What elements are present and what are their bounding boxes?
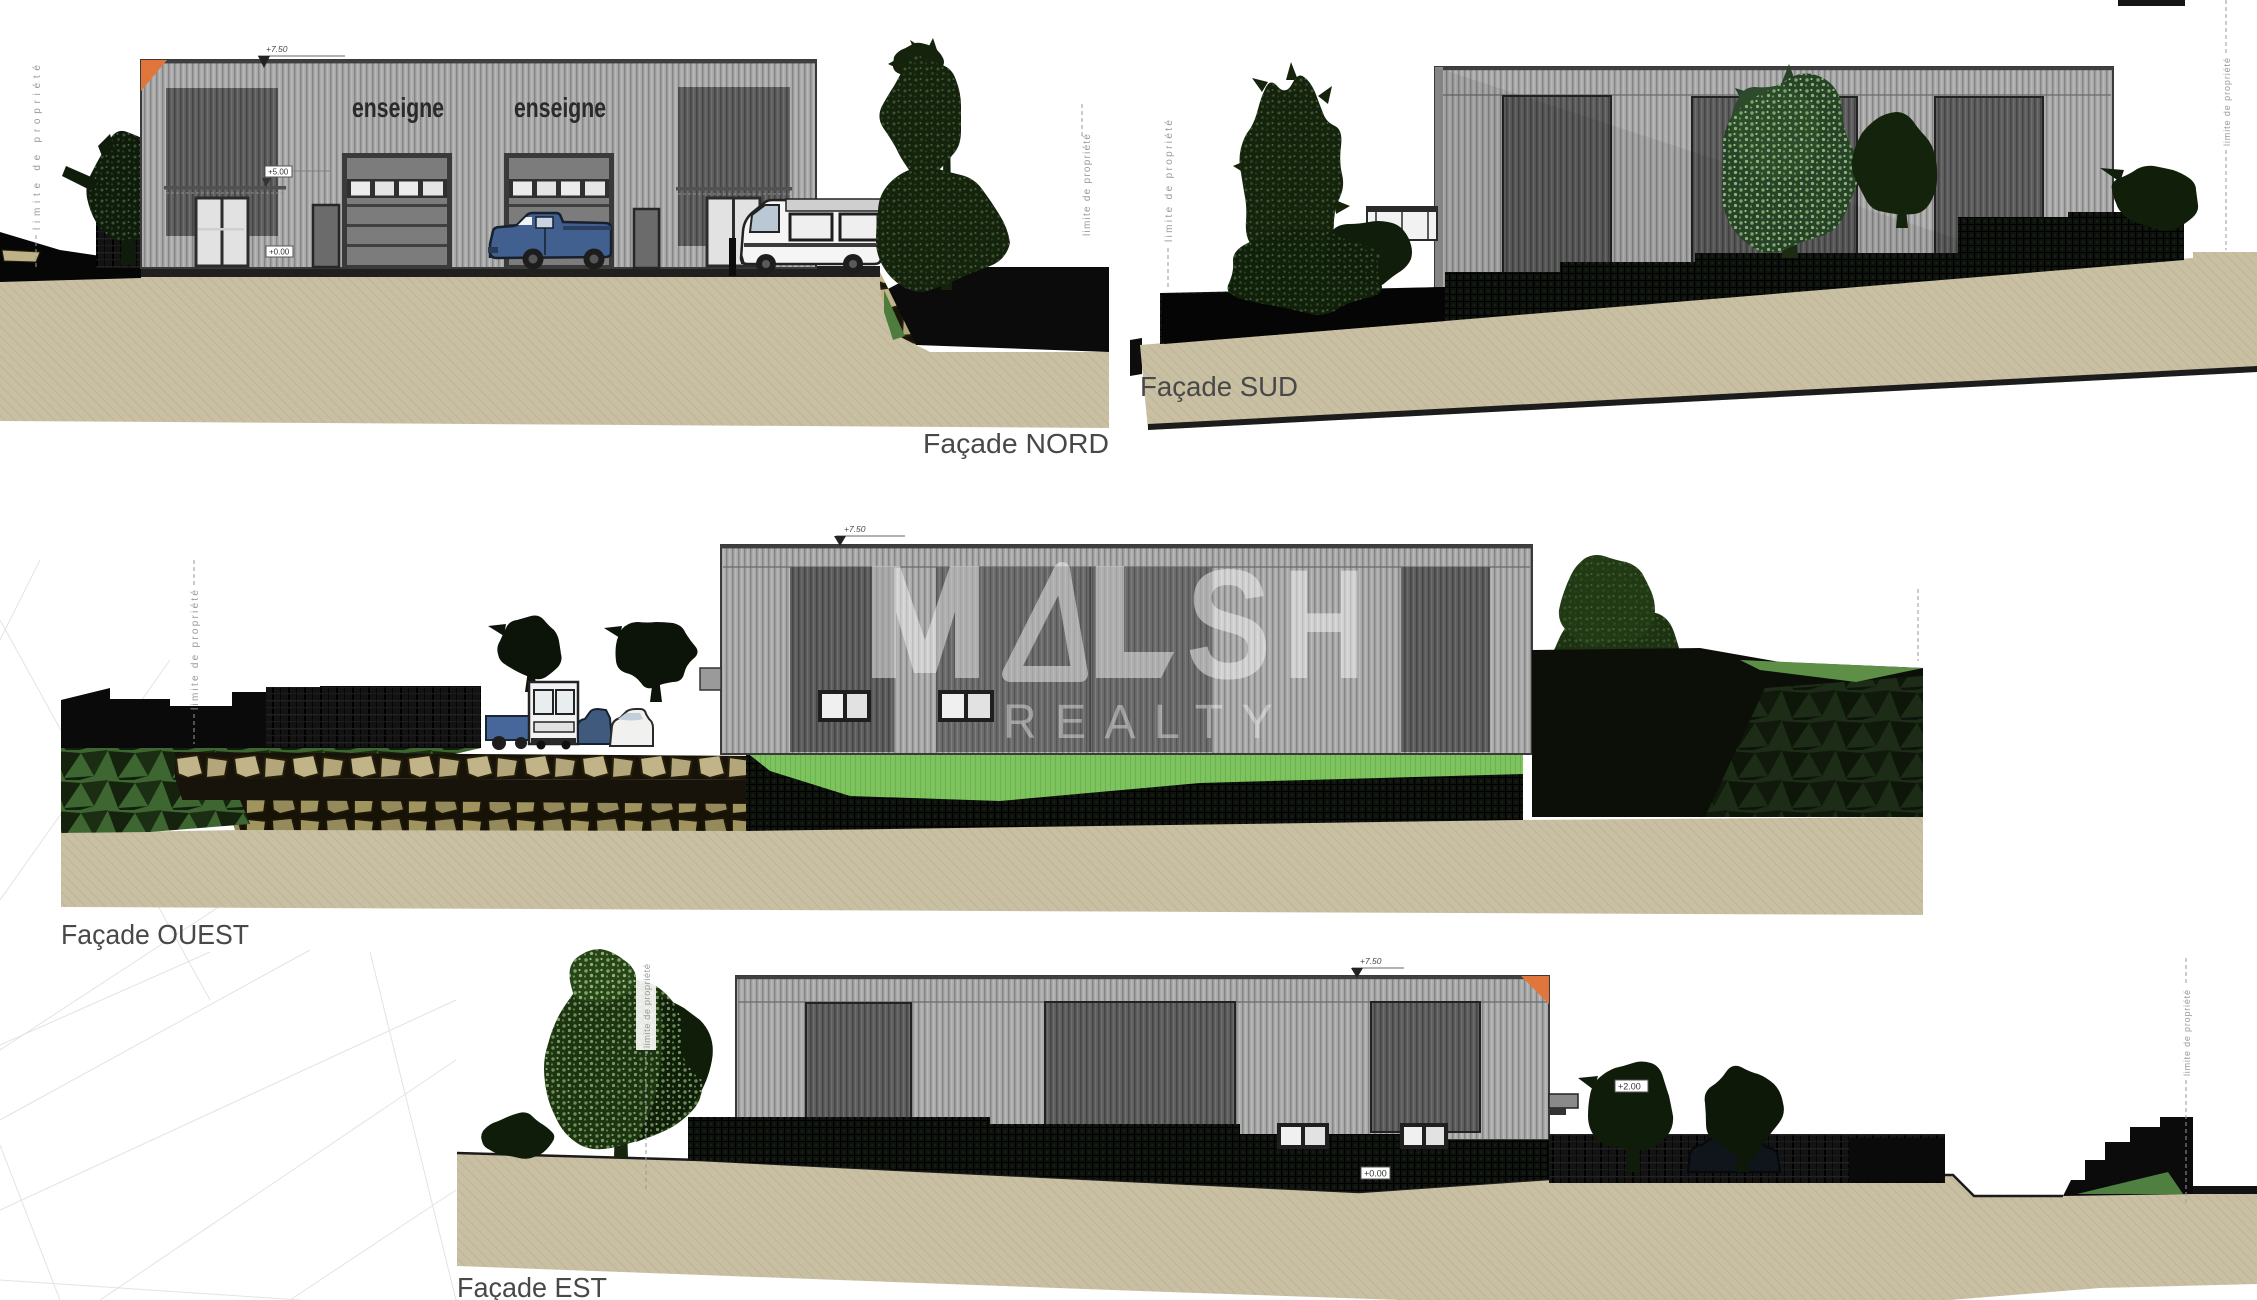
svg-text:enseigne: enseigne — [352, 92, 444, 123]
svg-text:S: S — [1186, 538, 1271, 712]
svg-text:+7.50: +7.50 — [844, 524, 866, 534]
svg-text:Façade NORD: Façade NORD — [923, 428, 1109, 459]
svg-text:+0.00: +0.00 — [1364, 1169, 1387, 1179]
svg-text:Façade EST: Façade EST — [457, 1272, 607, 1300]
svg-text:limite de propriété: limite de propriété — [642, 964, 653, 1048]
svg-text:limite de propriété: limite de propriété — [2222, 58, 2232, 146]
svg-text:+0.00: +0.00 — [269, 248, 290, 257]
svg-text:+2.00: +2.00 — [1618, 1082, 1641, 1092]
svg-text:limite de propriété: limite de propriété — [2182, 990, 2192, 1076]
svg-text:Façade OUEST: Façade OUEST — [61, 919, 249, 950]
svg-text:+7.50: +7.50 — [1360, 956, 1382, 966]
svg-text:+7.50: +7.50 — [266, 44, 288, 54]
svg-text:+5.00: +5.00 — [268, 168, 289, 177]
svg-text:Façade SUD: Façade SUD — [1140, 371, 1298, 402]
svg-text:enseigne: enseigne — [514, 92, 606, 123]
svg-text:REALTY: REALTY — [1003, 696, 1291, 749]
svg-text:H: H — [1283, 538, 1365, 712]
